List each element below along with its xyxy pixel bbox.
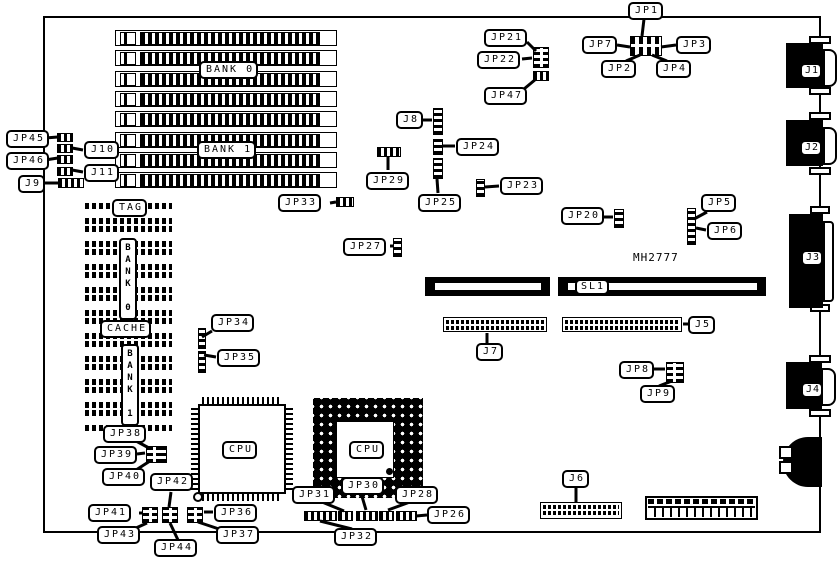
j2-tab-bottom xyxy=(809,167,831,175)
callout-jp4: JP4 xyxy=(656,60,691,78)
callout-jp39: JP39 xyxy=(94,446,137,464)
jumper-jp32 xyxy=(304,511,337,521)
jumper-jp20 xyxy=(614,209,624,228)
callout-jp24: JP24 xyxy=(456,138,499,156)
callout-jp25: JP25 xyxy=(418,194,461,212)
callout-jp26: JP26 xyxy=(427,506,470,524)
jumper-jp34 xyxy=(198,328,206,349)
jumper-block-jp36-jp37 xyxy=(187,507,203,523)
bank1-label: BANK 1 xyxy=(197,141,256,159)
part-number: MH2777 xyxy=(633,251,679,264)
callout-j8: J8 xyxy=(396,111,423,129)
callout-jp43: JP43 xyxy=(97,526,140,544)
motherboard-jumper-diagram: CPU CPU SL1 J1 xyxy=(0,0,838,562)
jumper-jp45 xyxy=(57,133,73,142)
callout-jp34: JP34 xyxy=(211,314,254,332)
power-connector xyxy=(645,496,758,520)
callout-jp45: JP45 xyxy=(6,130,49,148)
j4-label: J4 xyxy=(801,382,823,398)
pga-pin1-dot xyxy=(386,468,393,475)
qfp-pins-bottom xyxy=(202,493,282,501)
j1-tab-bottom xyxy=(809,87,831,95)
callout-j6: J6 xyxy=(562,470,589,488)
callout-jp40: JP40 xyxy=(102,468,145,486)
callout-jp38: JP38 xyxy=(103,425,146,443)
jumper-jp5-jp6 xyxy=(687,208,696,245)
callout-jp6: JP6 xyxy=(707,222,742,240)
callout-jp33: JP33 xyxy=(278,194,321,212)
callout-jp35: JP35 xyxy=(217,349,260,367)
callout-jp46: JP46 xyxy=(6,152,49,170)
cache-label: CACHE xyxy=(100,320,151,338)
j3-label: J3 xyxy=(801,250,823,266)
callout-jp37: JP37 xyxy=(216,526,259,544)
jumper-jp26 xyxy=(396,511,417,521)
callout-jp32: JP32 xyxy=(334,528,377,546)
callout-jp21: JP21 xyxy=(484,29,527,47)
bank0-label: BANK 0 xyxy=(199,61,258,79)
callout-jp5: JP5 xyxy=(701,194,736,212)
simm-socket xyxy=(115,30,337,46)
jumper-jp23 xyxy=(476,179,485,197)
jumper-jp24 xyxy=(433,139,443,155)
sl1-label: SL1 xyxy=(575,279,609,295)
j4-tab-bottom xyxy=(809,409,831,417)
callout-jp28: JP28 xyxy=(395,486,438,504)
callout-j7: J7 xyxy=(476,343,503,361)
callout-jp42: JP42 xyxy=(150,473,193,491)
callout-jp8: JP8 xyxy=(619,361,654,379)
callout-j11: J11 xyxy=(84,164,119,182)
callout-jp7: JP7 xyxy=(582,36,617,54)
callout-jp3: JP3 xyxy=(676,36,711,54)
qfp-pin1-marker xyxy=(193,492,203,502)
jumper-block-jp42-jp44 xyxy=(162,507,178,523)
jumper-jp28 xyxy=(379,511,394,521)
callout-jp1: JP1 xyxy=(628,2,663,20)
j2-shell xyxy=(823,127,837,165)
cache-bank1-label: BANK 1 xyxy=(121,344,139,426)
j2-tab-top xyxy=(809,112,831,120)
jumper-block-jp39-jp40 xyxy=(146,446,167,463)
callout-jp47: JP47 xyxy=(484,87,527,105)
tag-label: TAG xyxy=(112,199,147,217)
qfp-cpu-label: CPU xyxy=(222,441,257,459)
jumper-jp25 xyxy=(433,158,443,179)
connector-j6 xyxy=(540,502,622,519)
simm-socket xyxy=(115,91,337,107)
cache-bank0-label: BANK 0 xyxy=(119,238,137,320)
simm-socket xyxy=(115,111,337,127)
jumper-block-jp8-jp9 xyxy=(666,362,684,383)
jumper-jp46 xyxy=(57,155,73,164)
qfp-pins-top xyxy=(202,397,282,405)
callout-jp29: JP29 xyxy=(366,172,409,190)
jumper-j11 xyxy=(57,167,73,176)
callout-jp20: JP20 xyxy=(561,207,604,225)
jumper-jp30 xyxy=(356,511,378,521)
j1-label: J1 xyxy=(800,63,822,79)
callout-jp22: JP22 xyxy=(477,51,520,69)
callout-jp31: JP31 xyxy=(292,486,335,504)
jumper-jp29 xyxy=(377,147,401,157)
j4-shell xyxy=(821,368,836,406)
jumper-block-jp41-jp43 xyxy=(142,507,158,523)
jumper-jp31 xyxy=(338,511,353,521)
callout-j9: J9 xyxy=(18,175,45,193)
jumper-jp35 xyxy=(198,351,206,373)
j1-shell xyxy=(823,49,837,87)
callout-jp41: JP41 xyxy=(88,504,131,522)
simm-socket xyxy=(115,172,337,188)
jumper-jp33 xyxy=(336,197,354,207)
jumper-block-jp1 xyxy=(630,36,662,56)
jumper-block-jp21-jp22 xyxy=(533,47,549,68)
pga-cpu-label: CPU xyxy=(349,441,384,459)
callout-jp27: JP27 xyxy=(343,238,386,256)
callout-jp44: JP44 xyxy=(154,539,197,557)
callout-jp9: JP9 xyxy=(640,385,675,403)
jumper-j9 xyxy=(58,178,84,188)
callout-jp2: JP2 xyxy=(601,60,636,78)
jumper-j10 xyxy=(57,144,73,153)
callout-jp23: JP23 xyxy=(500,177,543,195)
jumper-jp27 xyxy=(393,238,402,257)
slot-left xyxy=(425,277,550,296)
connector-j7 xyxy=(443,317,547,332)
connector-j8-pins xyxy=(433,108,443,135)
jumper-jp47 xyxy=(533,71,549,81)
j3-shell xyxy=(823,221,834,302)
j2-label: J2 xyxy=(800,140,822,156)
callout-jp36: JP36 xyxy=(214,504,257,522)
connector-j5 xyxy=(562,317,682,332)
callout-jp30: JP30 xyxy=(341,477,384,495)
qfp-pins-right xyxy=(285,408,293,490)
callout-j10: J10 xyxy=(84,141,119,159)
j3-tab-top xyxy=(810,206,830,214)
callout-j5: J5 xyxy=(688,316,715,334)
